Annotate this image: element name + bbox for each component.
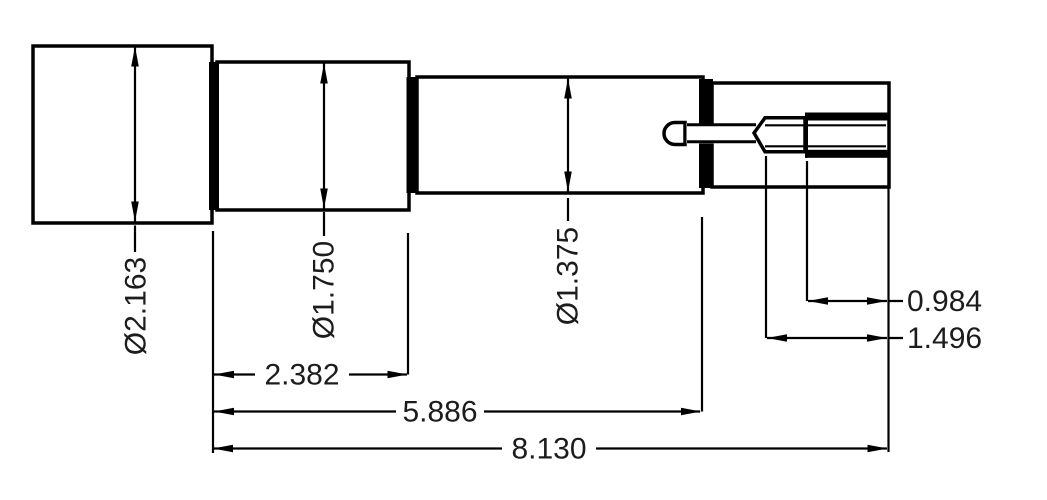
arrowhead-left <box>213 445 233 453</box>
arrowhead-left <box>767 334 787 342</box>
section-1-outline <box>33 46 212 223</box>
dim-label-diameter-section3: Ø1.375 <box>552 227 585 325</box>
arrowhead-left <box>214 371 234 379</box>
arrowhead-right <box>388 371 408 379</box>
dim-shoulder-length: 5.886 <box>214 396 701 429</box>
arrowhead-right <box>867 334 887 342</box>
groove-band-1 <box>209 62 219 210</box>
dim-label-overall-length: 8.130 <box>511 433 586 466</box>
arrowhead-right <box>681 408 701 416</box>
arrowhead-left <box>214 408 234 416</box>
arrowhead-right <box>867 297 887 305</box>
dim-stud-length: 1.496 <box>767 322 982 355</box>
dim-label-section2-length: 2.382 <box>264 359 339 392</box>
drawing-canvas: Ø2.163 Ø1.750 Ø1.375 0.984 1.496 <box>0 0 1047 500</box>
pin-head <box>664 123 685 145</box>
arrowhead-right <box>868 445 888 453</box>
dim-overall-length: 8.130 <box>213 433 888 466</box>
arrowhead-left <box>808 297 828 305</box>
groove-band-2 <box>407 77 419 193</box>
dim-label-shoulder-length: 5.886 <box>402 396 477 429</box>
dim-thread-length: 0.984 <box>808 285 982 318</box>
dim-label-thread-length: 0.984 <box>907 285 982 318</box>
dim-section2-length: 2.382 <box>214 359 408 392</box>
dim-label-stud-length: 1.496 <box>907 322 982 355</box>
technical-drawing: Ø2.163 Ø1.750 Ø1.375 0.984 1.496 <box>0 0 1047 500</box>
thread-crest-top <box>805 113 889 121</box>
dim-label-diameter-section2: Ø1.750 <box>308 241 341 339</box>
section-2-outline <box>217 62 409 210</box>
thread-crest-bottom <box>805 150 889 158</box>
dim-label-diameter-section1: Ø2.163 <box>120 257 153 355</box>
section-3-outline <box>417 77 703 193</box>
